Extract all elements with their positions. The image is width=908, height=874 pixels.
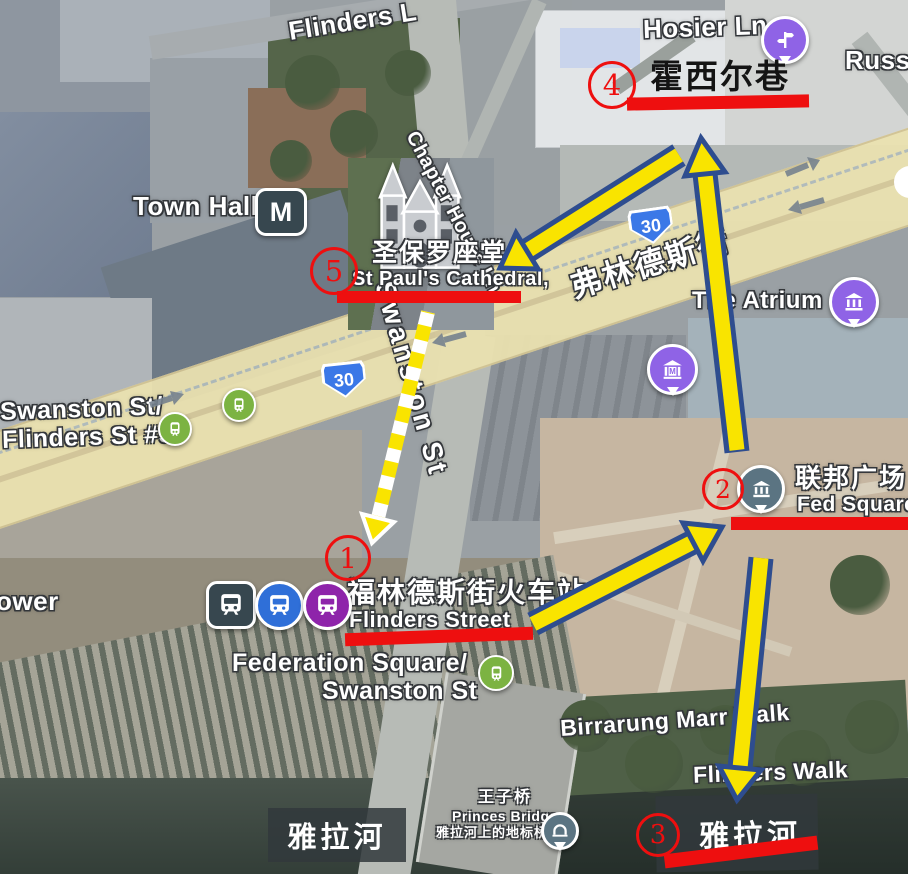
bridge-label-en[interactable]: Princes Bridge bbox=[452, 809, 558, 824]
cathedral-label-zh[interactable]: 圣保罗座堂 bbox=[372, 240, 507, 266]
svg-text:M: M bbox=[669, 367, 676, 376]
tram-stop-icon[interactable] bbox=[478, 655, 514, 691]
river-name: 雅拉河 bbox=[287, 814, 386, 856]
satellite-map-canvas[interactable]: 雅拉河 雅拉河 Flinders L Chapter House Ln Hosi… bbox=[0, 0, 908, 874]
museum-pin[interactable]: M bbox=[647, 344, 698, 395]
tree bbox=[830, 555, 890, 615]
place-label-town-hall[interactable]: Town Hall bbox=[133, 193, 258, 220]
metro-train-icon[interactable] bbox=[206, 581, 256, 629]
museum-icon: M bbox=[660, 357, 685, 382]
tree bbox=[845, 700, 899, 754]
step-circle-3: 3 bbox=[636, 813, 680, 857]
tree bbox=[385, 50, 431, 96]
tram-stop-icon[interactable] bbox=[222, 388, 256, 422]
route-number: 30 bbox=[640, 214, 663, 238]
bridge-icon bbox=[551, 822, 569, 840]
step-number: 3 bbox=[650, 820, 667, 850]
the-atrium-pin[interactable] bbox=[829, 277, 879, 327]
tree bbox=[285, 55, 340, 110]
tree bbox=[270, 140, 312, 182]
step-number: 5 bbox=[325, 254, 343, 288]
tram-stop-icon[interactable] bbox=[158, 412, 192, 446]
pavilion-icon bbox=[750, 478, 773, 501]
bridge-label-zh[interactable]: 王子桥 bbox=[478, 790, 532, 807]
fedsq-stop-label-line1[interactable]: Federation Square/ bbox=[232, 650, 467, 676]
river-label-box: 雅拉河 bbox=[268, 808, 406, 862]
signpost-icon bbox=[773, 28, 797, 52]
street-label-hosier-ln: Hosier Ln bbox=[643, 12, 768, 44]
tram-stop5-label-line2[interactable]: Flinders St #5 bbox=[2, 421, 174, 453]
cathedral-label-en[interactable]: St Paul's Cathedral, bbox=[352, 269, 549, 290]
hosier-ln-pin[interactable] bbox=[761, 16, 809, 64]
night-train-icon[interactable] bbox=[303, 581, 352, 630]
step-number: 1 bbox=[339, 542, 357, 575]
fed-square-pin[interactable] bbox=[737, 465, 785, 513]
tram-icon bbox=[166, 420, 184, 438]
town-hall-metro-icon[interactable]: M bbox=[255, 188, 307, 236]
train-icon bbox=[315, 593, 340, 618]
step-circle-4: 4 bbox=[588, 61, 636, 109]
step-circle-2: 2 bbox=[702, 468, 744, 510]
train-icon bbox=[218, 592, 244, 618]
tree bbox=[330, 110, 378, 158]
metro-m-glyph: M bbox=[270, 197, 293, 228]
regional-train-icon[interactable] bbox=[255, 581, 304, 630]
fed-square-label-en[interactable]: Fed Square bbox=[797, 494, 908, 516]
route-number: 30 bbox=[333, 369, 355, 392]
street-label-flinders-walk: Flinders Walk bbox=[693, 757, 849, 787]
station-label-en[interactable]: Flinders Street bbox=[349, 608, 511, 631]
step-circle-1: 1 bbox=[325, 535, 371, 581]
building-block bbox=[560, 28, 640, 68]
street-label-russell-st: Russe bbox=[845, 47, 908, 74]
place-label-the-atrium[interactable]: The Atrium bbox=[692, 288, 823, 313]
step-number: 4 bbox=[603, 68, 621, 102]
station-label-zh[interactable]: 福林德斯街火车站 bbox=[347, 578, 587, 607]
fed-square-label-zh[interactable]: 联邦广场 bbox=[795, 465, 907, 492]
step4-label-hosier-zh: 霍西尔巷 bbox=[650, 60, 790, 95]
tram-icon bbox=[230, 396, 248, 414]
tree bbox=[625, 735, 683, 793]
landmark-icon bbox=[842, 290, 866, 314]
step-number: 2 bbox=[715, 475, 731, 504]
tram-icon bbox=[487, 664, 506, 683]
river-name: 雅拉河 bbox=[699, 810, 802, 856]
street-label-tower-partial: ower bbox=[0, 588, 59, 615]
step-circle-5: 5 bbox=[310, 247, 358, 295]
fedsq-stop-label-line2[interactable]: Swanston St bbox=[322, 678, 478, 704]
train-icon bbox=[267, 593, 292, 618]
princes-bridge-pin[interactable] bbox=[541, 812, 579, 850]
